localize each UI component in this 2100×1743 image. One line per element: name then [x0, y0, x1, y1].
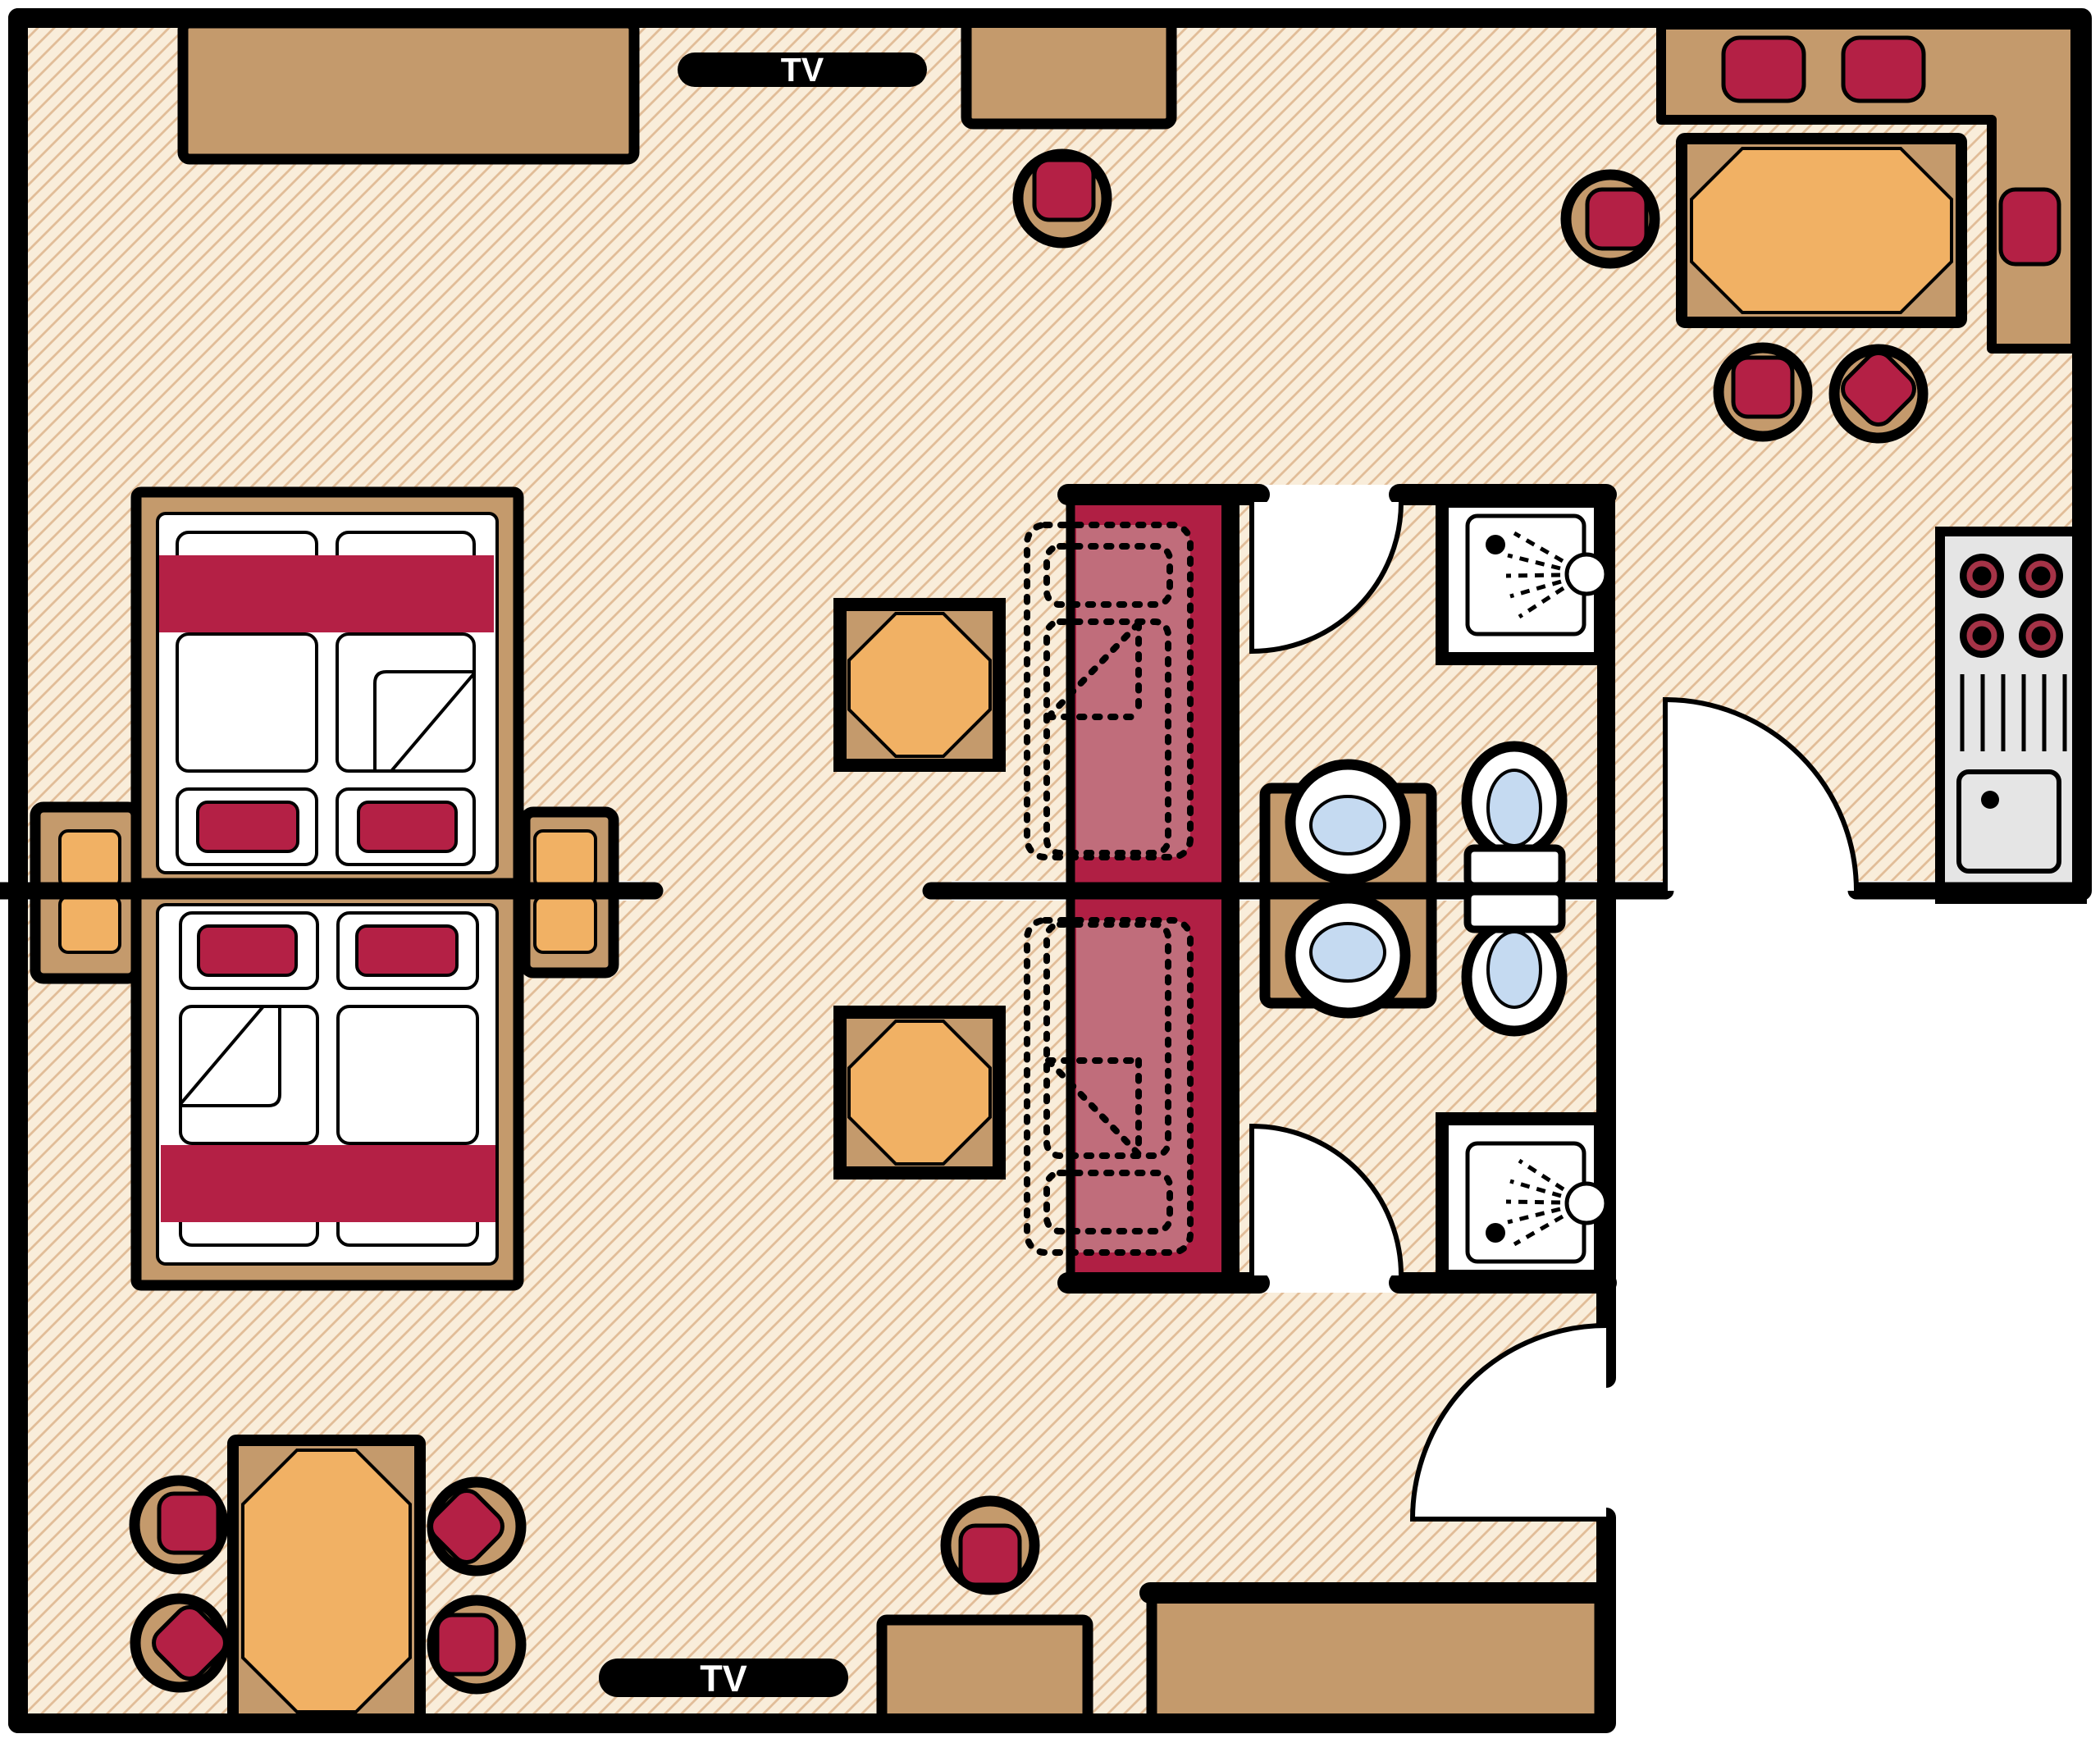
- svg-text:TV: TV: [781, 51, 824, 89]
- svg-text:TV: TV: [700, 1658, 747, 1700]
